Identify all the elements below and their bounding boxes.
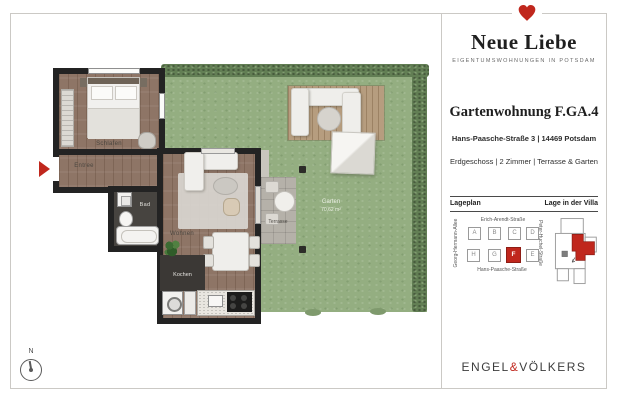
bedroom-label: Schlafen xyxy=(63,141,155,147)
sun-sail xyxy=(330,131,375,175)
logo-voelkers: VÖLKERS xyxy=(519,360,586,374)
entry-door-gap xyxy=(53,157,59,181)
siteplan-rule-bottom xyxy=(450,211,598,212)
nightstand xyxy=(80,78,87,87)
bathtub xyxy=(116,226,159,245)
siteplan-header: Lageplan Lage in der Villa xyxy=(450,200,598,207)
pillow xyxy=(115,86,137,100)
dining-chair xyxy=(203,236,214,249)
brand-subtitle: EIGENTUMSWOHNUNGEN IN POTSDAM xyxy=(441,58,607,64)
building-d: D xyxy=(526,227,539,240)
grass-tuft xyxy=(370,308,386,315)
dining-chair xyxy=(249,236,260,249)
building-g: G xyxy=(488,249,501,262)
brand-title: Neue Liebe xyxy=(441,30,607,55)
bed-headboard xyxy=(88,78,139,84)
garden-name: Garten xyxy=(300,199,362,207)
bedroom-side-window xyxy=(159,93,165,119)
cooktop xyxy=(227,292,252,312)
wardrobe xyxy=(61,89,74,147)
building-a: A xyxy=(468,227,481,240)
fridge xyxy=(184,291,196,315)
burner xyxy=(241,303,247,309)
kitchen-sink xyxy=(208,295,223,307)
kitchen-label: Kochen xyxy=(160,272,205,278)
plant xyxy=(163,238,181,257)
burner xyxy=(241,295,247,301)
pillow xyxy=(91,86,113,100)
hedge-right xyxy=(412,64,427,312)
unit-details: Erdgeschoss | 2 Zimmer | Terrasse & Gart… xyxy=(441,157,607,166)
brochure-page: Garten 70,62 m² Terrasse xyxy=(0,0,617,400)
street-label-top: Erich-Arendt-Straße xyxy=(460,217,546,223)
villa-plan xyxy=(548,214,600,295)
garden-area: 70,62 m² xyxy=(300,207,362,213)
bathtub-basin xyxy=(121,230,157,243)
grass-tuft xyxy=(305,309,321,316)
compass-north-label: N xyxy=(22,348,40,355)
washing-machine xyxy=(162,291,183,315)
terrace-table xyxy=(274,191,295,212)
hedge-top xyxy=(161,64,429,77)
bath-label: Bad xyxy=(132,202,158,208)
siteplan-heading-left: Lageplan xyxy=(450,200,481,207)
logo-ampersand: & xyxy=(510,360,520,374)
entry-label: Entree xyxy=(59,163,109,169)
garden-label: Garten 70,62 m² xyxy=(300,199,362,213)
street-label-right: Peter-Huchel-Straße xyxy=(537,213,543,273)
building-b: B xyxy=(488,227,501,240)
dining-chair xyxy=(249,254,260,267)
sofa xyxy=(184,152,204,191)
armchair xyxy=(223,198,240,216)
north-compass-icon xyxy=(20,359,42,381)
building-h: H xyxy=(467,249,480,262)
garden-door xyxy=(201,148,235,154)
burner xyxy=(230,303,236,309)
panel-divider xyxy=(441,13,442,388)
street-label-bottom: Hans-Paasche-Straße xyxy=(458,267,546,273)
living-label: Wohnen xyxy=(162,231,202,237)
outdoor-sofa xyxy=(291,88,309,136)
outdoor-table xyxy=(317,107,341,131)
unit-title: Gartenwohnung F.GA.4 xyxy=(441,104,607,121)
terrace-chair xyxy=(265,181,279,193)
logo-engel: ENGEL xyxy=(462,360,510,374)
building-c: C xyxy=(508,227,521,240)
siteplan-rule-top xyxy=(450,196,598,197)
street-label-left: Georg-Hermann-Allee xyxy=(453,213,459,273)
outdoor-lounger xyxy=(342,92,361,136)
burner xyxy=(230,295,236,301)
compass-hub xyxy=(29,368,33,372)
sink-basin xyxy=(121,196,131,206)
dining-table xyxy=(212,232,249,271)
washer-drum xyxy=(167,297,182,312)
engel-voelkers-logo: ENGEL&VÖLKERS xyxy=(441,360,607,374)
unit-address: Hans-Paasche-Straße 3 | 14469 Potsdam xyxy=(441,134,607,143)
bed xyxy=(87,77,140,138)
nightstand xyxy=(140,78,147,87)
terrace-label: Terrasse xyxy=(256,219,300,225)
siteplan-heading-right: Lage in der Villa xyxy=(544,200,598,207)
garden-light xyxy=(299,166,306,173)
toilet xyxy=(119,211,133,227)
terrace-door xyxy=(255,186,261,224)
garden-light xyxy=(299,246,306,253)
building-e: E xyxy=(526,249,539,262)
beanbag xyxy=(213,177,238,195)
blanket xyxy=(88,108,139,139)
entrance-arrow-icon xyxy=(39,161,50,177)
heart-icon xyxy=(517,3,537,27)
bedroom-window xyxy=(88,68,140,74)
bath-sink xyxy=(117,192,132,207)
building-f-highlighted: F xyxy=(506,247,521,263)
